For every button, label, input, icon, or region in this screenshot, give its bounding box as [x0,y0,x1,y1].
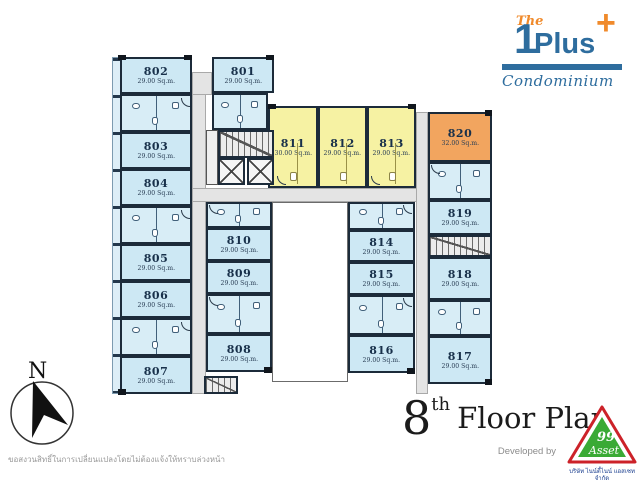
room-number: 802 [144,66,168,77]
room-820: 82032.00 Sq.m. [428,112,492,162]
wall-column [485,110,492,116]
room-area: 29.00 Sq.m. [137,378,175,384]
compass-icon: N [6,354,88,450]
wall-column [118,55,126,60]
elevator-icon [218,158,245,185]
staircase-exit [204,376,238,394]
floor-number: 8 [402,391,431,445]
room-808: 80829.00 Sq.m. [206,334,272,372]
toilet-icon [253,302,260,309]
room-815: 81529.00 Sq.m. [348,262,415,295]
room-area: 29.00 Sq.m. [363,281,401,287]
room-number: 819 [448,208,472,219]
room-area: 29.00 Sq.m. [363,357,401,363]
sink-icon [132,103,140,109]
shower-icon [152,117,158,125]
wall-column [118,389,126,395]
corridor-central [192,188,432,202]
shower-icon [152,229,158,237]
room-area: 29.00 Sq.m. [137,302,175,308]
staircase-main [218,130,274,158]
toilet-icon [172,214,179,221]
wall-column [266,55,274,60]
shower-icon [378,320,384,328]
room-area: 29.00 Sq.m. [441,281,479,287]
room-area: 29.00 Sq.m. [441,363,479,369]
developer-logo-99: 99 [597,430,615,445]
room-number: 818 [448,269,472,280]
wall-column [184,55,192,60]
sink-icon [359,209,367,215]
developer-logo-triangle: 99 Asset [566,404,638,466]
room-area: 29.00 Sq.m. [324,150,362,156]
room-number: 806 [144,290,168,301]
room-803: 80329.00 Sq.m. [120,132,192,169]
elevator-icon [247,158,274,185]
room-805: 80529.00 Sq.m. [120,244,192,281]
room-number: 820 [448,128,472,139]
toilet-icon [253,208,260,215]
room-807: 80729.00 Sq.m. [120,356,192,394]
wall-column [408,104,416,109]
toilet-icon [396,208,403,215]
service-shaft [206,130,218,185]
toilet-icon [251,101,258,108]
sink-icon [438,309,446,315]
developer-company-name: บริษัท ไนน์ตี้ไนน์ แอสเซท จำกัด [566,469,638,483]
room-802: 80229.00 Sq.m. [120,57,192,94]
plus-icon: + [596,6,616,40]
room-number: 807 [144,366,168,377]
room-814: 81429.00 Sq.m. [348,230,415,262]
corridor-right [416,112,428,394]
shower-icon [378,217,384,225]
toilet-icon [389,172,396,181]
room-area: 29.00 Sq.m. [220,247,258,253]
room-area: 30.00 Sq.m. [274,150,312,156]
room-number: 804 [144,178,168,189]
room-819: 81929.00 Sq.m. [428,200,492,235]
room-number: 812 [330,138,354,149]
toilet-icon [172,102,179,109]
room-number: 816 [369,345,393,356]
room-number: 815 [369,269,393,280]
sink-icon [221,102,229,108]
disclaimer-text: ขอสงวนสิทธิ์ในการเปลี่ยนแปลงโดยไม่ต้องแจ… [8,453,225,466]
room-number: 808 [227,344,251,355]
toilet-icon [396,303,403,310]
room-area: 32.00 Sq.m. [441,140,479,146]
room-area: 29.00 Sq.m. [220,356,258,362]
developer-logo: 99 Asset บริษัท ไนน์ตี้ไนน์ แอสเซท จำกัด [566,404,638,483]
logo-underline [502,64,622,70]
shower-icon [235,215,241,223]
room-area: 29.00 Sq.m. [137,265,175,271]
wall-column [485,379,492,385]
room-number: 811 [281,138,305,149]
bath-module [428,300,492,336]
sink-icon [359,305,367,311]
room-number: 801 [231,66,255,77]
toilet-icon [172,326,179,333]
room-area: 29.00 Sq.m. [137,153,175,159]
courtyard [272,202,348,382]
shower-icon [456,185,462,193]
room-area: 29.00 Sq.m. [373,150,411,156]
room-816: 81629.00 Sq.m. [348,335,415,373]
developer-logo-asset: Asset [588,444,620,457]
wall-column [264,367,272,373]
shower-icon [152,341,158,349]
room-817: 81729.00 Sq.m. [428,336,492,384]
room-number: 810 [227,235,251,246]
shower-icon [456,322,462,330]
toilet-icon [340,172,347,181]
room-810: 81029.00 Sq.m. [206,228,272,261]
room-number: 817 [448,351,472,362]
shower-icon [235,319,241,327]
compass-north-label: N [28,359,47,384]
sink-icon [132,327,140,333]
logo-plus-word: Plus [534,30,595,59]
room-area: 29.00 Sq.m. [137,78,175,84]
room-area: 29.00 Sq.m. [137,190,175,196]
developed-by-label: Developed by [448,446,556,457]
toilet-icon [290,172,297,181]
room-area: 29.00 Sq.m. [224,78,262,84]
room-area: 29.00 Sq.m. [441,220,479,226]
staircase-right [428,235,492,257]
shower-icon [237,115,243,123]
room-number: 805 [144,253,168,264]
toilet-icon [473,308,480,315]
sink-icon [132,215,140,221]
room-number: 814 [369,237,393,248]
bath-module [212,93,268,130]
room-801: 80129.00 Sq.m. [212,57,274,93]
toilet-icon [473,170,480,177]
room-area: 29.00 Sq.m. [363,249,401,255]
room-804: 80429.00 Sq.m. [120,169,192,206]
corridor-left [192,93,206,394]
wall-column [268,104,276,109]
wall-column [407,368,415,374]
room-809: 80929.00 Sq.m. [206,261,272,294]
floor-ordinal: th [431,394,450,415]
room-number: 813 [379,138,403,149]
logo-subtitle: Condominium [502,72,614,90]
room-area: 29.00 Sq.m. [220,280,258,286]
floor-plan-page: { "header": { "logo": { "the": "The", "o… [0,0,640,480]
room-number: 809 [227,268,251,279]
corridor-top-connector [192,72,212,95]
room-806: 80629.00 Sq.m. [120,281,192,318]
room-number: 803 [144,141,168,152]
brand-logo: The 1 Plus + Condominium [500,14,632,90]
room-818: 81829.00 Sq.m. [428,257,492,300]
